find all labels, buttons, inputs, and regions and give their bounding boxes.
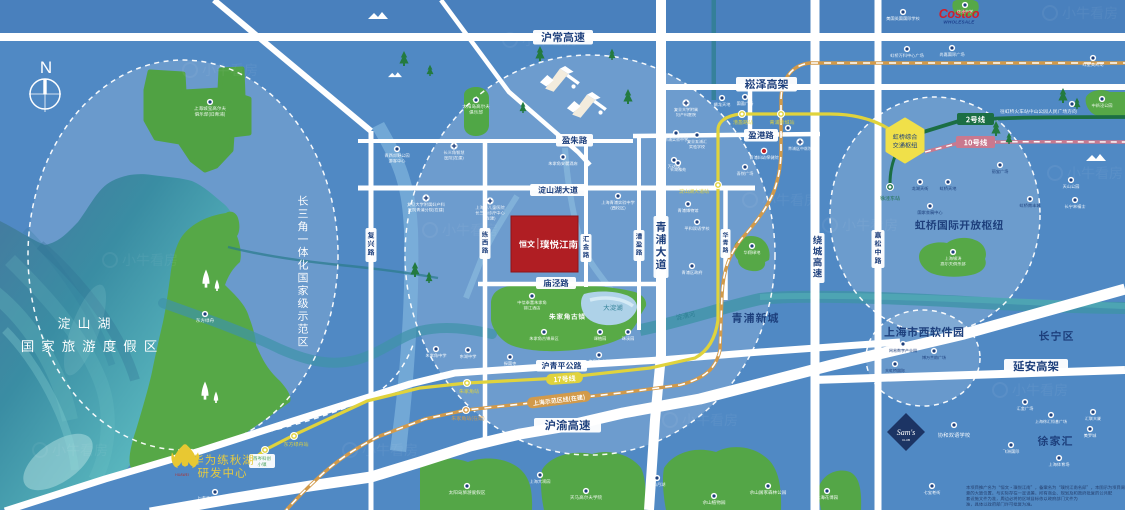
svg-text:Sam's: Sam's <box>897 428 916 437</box>
svg-text:WHOLESALE: WHOLESALE <box>943 20 975 25</box>
svg-text:N: N <box>40 58 52 77</box>
svg-text:CLUB: CLUB <box>902 438 910 442</box>
